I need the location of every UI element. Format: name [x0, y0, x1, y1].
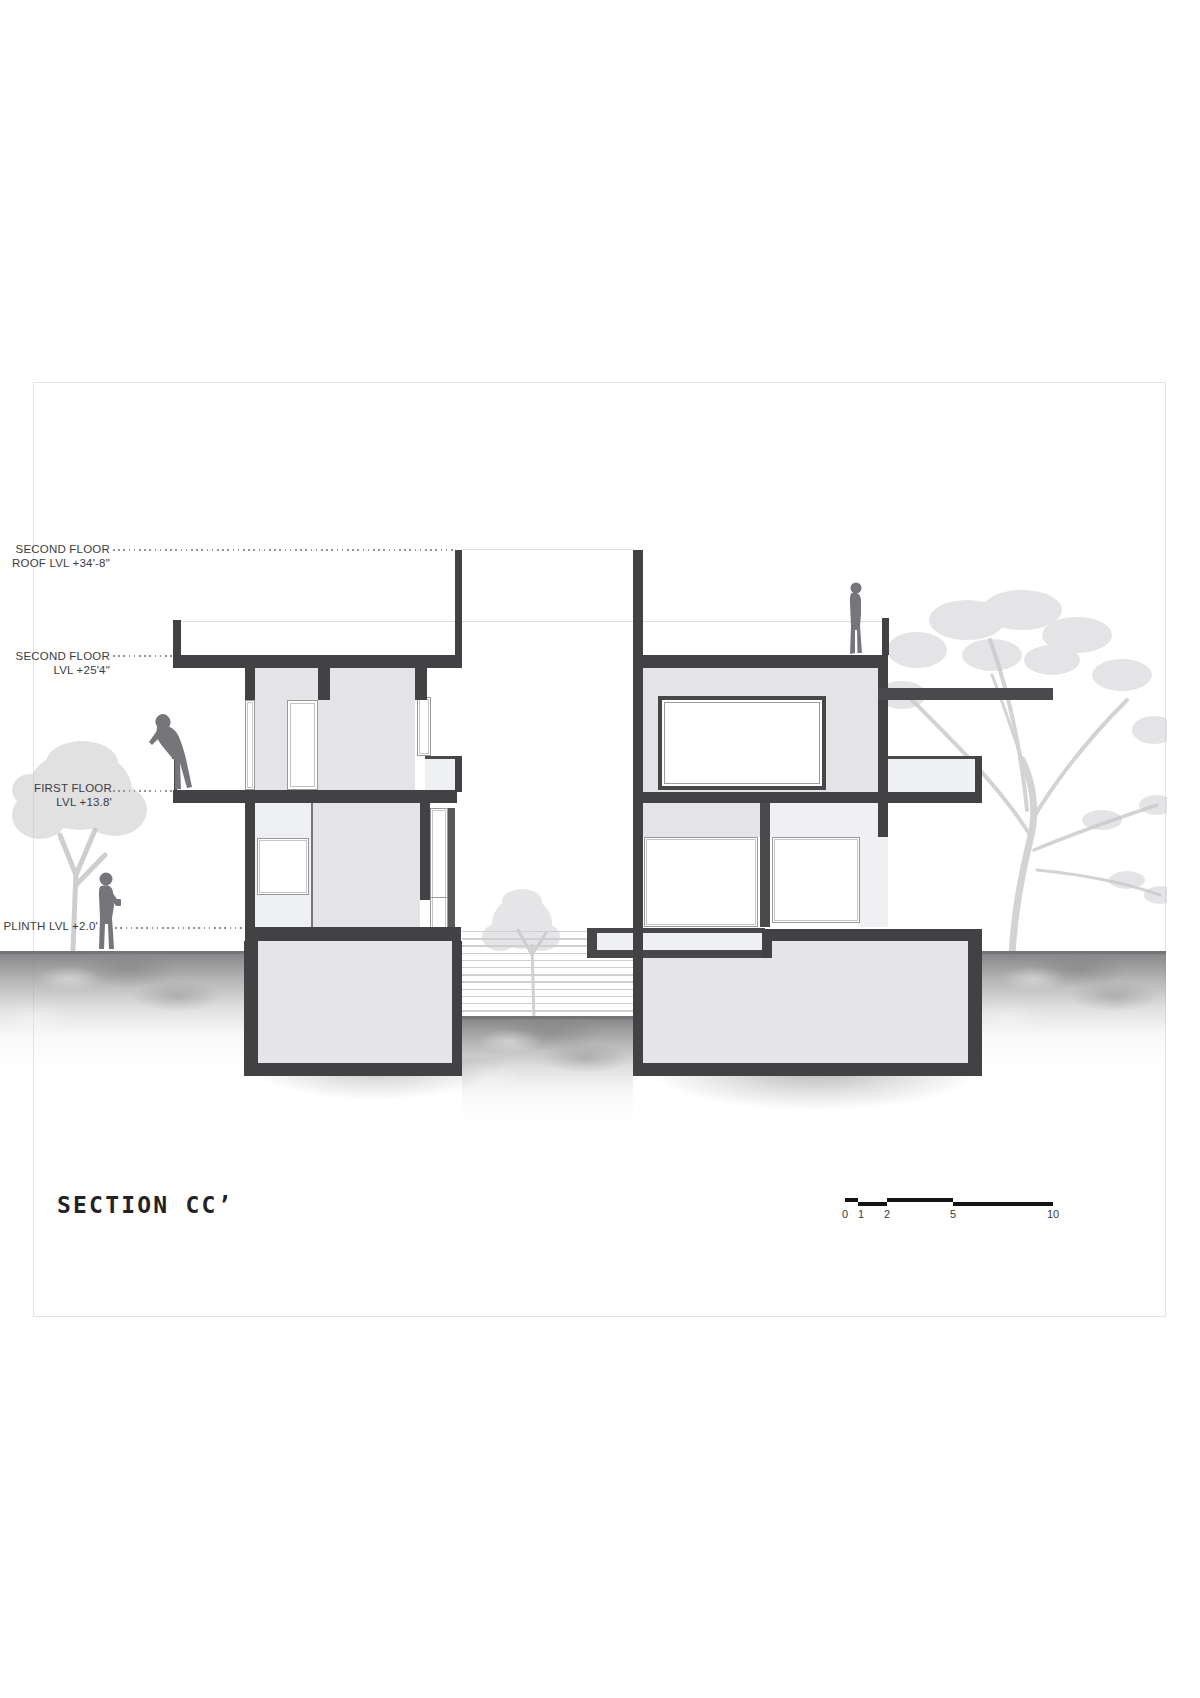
left-building-lower-window: [257, 838, 309, 895]
level-label-line: ROOF LVL +34'-8": [12, 557, 110, 571]
left-building-basement-right-wall: [452, 941, 462, 1076]
left-building-basement-bottom-slab: [244, 1063, 462, 1076]
right-building-first-floor-slab: [633, 792, 982, 803]
right-building-upper-right-wall-cut: [878, 668, 888, 792]
left-building-door-head-wall: [318, 668, 330, 700]
scale-label-0: 0: [842, 1208, 848, 1220]
level-label-line: LVL +25'4": [16, 664, 110, 678]
level-label-line: PLINTH LVL +2.0': [3, 920, 98, 934]
right-building-lower-right-wall-cut: [878, 803, 888, 837]
drawing-sheet: SECOND FLOOR ROOF LVL +34'-8" SECOND FLO…: [0, 0, 1200, 1698]
right-building-balcony-panel: [888, 756, 975, 792]
right-building-upper-window: [658, 696, 826, 790]
right-building-lower-mullion: [760, 803, 770, 927]
left-building-courtyard-window-transom: [431, 897, 447, 898]
left-building-door: [287, 700, 318, 790]
right-building-plinth-ledge: [587, 928, 765, 958]
left-building-roof-parapet: [173, 620, 181, 655]
right-building-lower-window-right: [772, 837, 860, 923]
level-label-line: FIRST FLOOR: [34, 782, 112, 796]
right-building-lower-right-zone: [858, 837, 888, 927]
left-building-plinth-slab: [245, 927, 461, 941]
right-building-lower-band-right: [770, 803, 878, 837]
right-building-lower-band-left: [642, 803, 760, 837]
soil-under-right-basement: [600, 1068, 1030, 1156]
person-leaning-icon: [148, 713, 200, 792]
left-building-roof-slab: [173, 655, 462, 668]
roof-reference-line: [462, 549, 633, 550]
left-building-lower-wall-elevation: [313, 803, 420, 927]
left-building-balcony-wall: [455, 756, 462, 792]
left-building-lower-right-wall-cut: [420, 803, 430, 900]
level-label-line: SECOND FLOOR: [16, 650, 110, 664]
level-label-second-floor: SECOND FLOOR LVL +25'4": [16, 650, 110, 677]
level-label-line: SECOND FLOOR: [12, 543, 110, 557]
right-building-roof-parapet: [882, 618, 889, 655]
right-building-left-wall-cut: [633, 550, 643, 1076]
scale-label-2: 2: [884, 1208, 890, 1220]
right-building-canopy: [878, 688, 1053, 700]
level-label-line: LVL +13.8': [34, 796, 112, 810]
level-line-roof: [113, 549, 455, 551]
scale-bar-segment: [953, 1202, 1053, 1206]
scale-label-10: 10: [1047, 1208, 1059, 1220]
left-building-basement-fill: [258, 941, 452, 1063]
right-building-basement-right-wall: [968, 941, 982, 1076]
ground-right: [982, 951, 1166, 1066]
person-on-roof-icon: [845, 582, 869, 656]
level-label-first-floor: FIRST FLOOR LVL +13.8': [34, 782, 112, 809]
left-building-basement-left-wall: [244, 941, 258, 1076]
left-building-upper-right-window: [417, 697, 431, 756]
level-label-roof: SECOND FLOOR ROOF LVL +34'-8": [12, 543, 110, 570]
left-building-upper-wall-elevation: [255, 668, 415, 790]
right-building-lower-window-left: [644, 837, 758, 927]
left-building-upper-right-wall-cut: [415, 668, 427, 700]
right-building-plinth-slab: [762, 929, 982, 941]
scale-bar-segment: [858, 1202, 887, 1206]
railing-reference-line: [181, 621, 884, 622]
left-building-stair-tower-wall: [455, 550, 462, 668]
level-label-plinth: PLINTH LVL +2.0': [3, 920, 98, 934]
left-building-courtyard-window: [430, 808, 448, 930]
person-standing-icon: [92, 872, 124, 952]
right-building-basement-bottom-slab: [633, 1063, 982, 1076]
level-line-plinth: [110, 927, 244, 929]
left-building-upper-left-window: [245, 700, 255, 790]
level-line-second-floor: [113, 655, 173, 657]
right-building-roof-slab: [633, 655, 888, 668]
drawing-title: SECTION CC’: [57, 1192, 234, 1218]
scale-bar-segment: [845, 1198, 858, 1202]
ground-left: [0, 951, 246, 1066]
scale-label-5: 5: [950, 1208, 956, 1220]
left-building-lower-left-wall-cut: [245, 803, 255, 927]
left-building-courtyard-mullion: [448, 808, 455, 930]
scale-label-1: 1: [858, 1208, 864, 1220]
right-building-balcony-wall: [975, 756, 982, 792]
scale-bar-segment: [887, 1198, 953, 1202]
right-building-basement-fill: [643, 941, 968, 1063]
left-building-upper-left-wall-cut: [245, 668, 255, 700]
left-building-first-floor-slab: [173, 790, 457, 803]
